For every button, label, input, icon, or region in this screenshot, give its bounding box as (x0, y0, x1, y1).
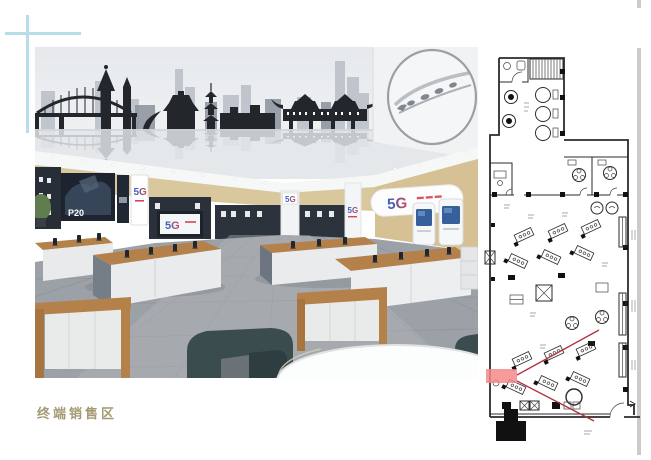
plan-toilet-room (499, 58, 528, 82)
ink-circle-art (388, 50, 476, 144)
column-placard-label: 5G (285, 195, 296, 204)
fiveg-lightbox-label: 5G (134, 187, 148, 198)
plan-experience-tables-upper (503, 220, 602, 272)
plan-upper-rooms (490, 157, 628, 195)
fiveg-screen-label: 5G (165, 220, 180, 232)
fiveg-screen: 5G (157, 211, 203, 237)
plan-wing-tables (503, 88, 559, 141)
store-rendering-image: P20 5G 5G 5G 5G (35, 47, 478, 378)
wood-console-left (35, 297, 131, 378)
column-near-label: 5G (348, 206, 359, 215)
page-edge-line-top (637, 0, 641, 8)
p20-poster: P20 (61, 173, 115, 221)
plan-stairs (530, 59, 563, 79)
plan-right-shelving (619, 217, 626, 377)
plan-walls (490, 58, 640, 417)
section-caption: 终端销售区 (37, 403, 117, 422)
fiveg-curved-sign-label: 5G (387, 195, 408, 213)
fiveg-lightbox-vertical: 5G (131, 175, 148, 225)
crosshair-horizontal-line (5, 32, 81, 35)
plan-highlight-zone (486, 369, 517, 383)
plan-mid-fixtures (485, 251, 609, 346)
floor-plan-image (484, 45, 647, 455)
p20-poster-label: P20 (68, 208, 84, 218)
plan-round-tables (591, 202, 618, 214)
article-page: P20 5G 5G 5G 5G (0, 0, 651, 460)
